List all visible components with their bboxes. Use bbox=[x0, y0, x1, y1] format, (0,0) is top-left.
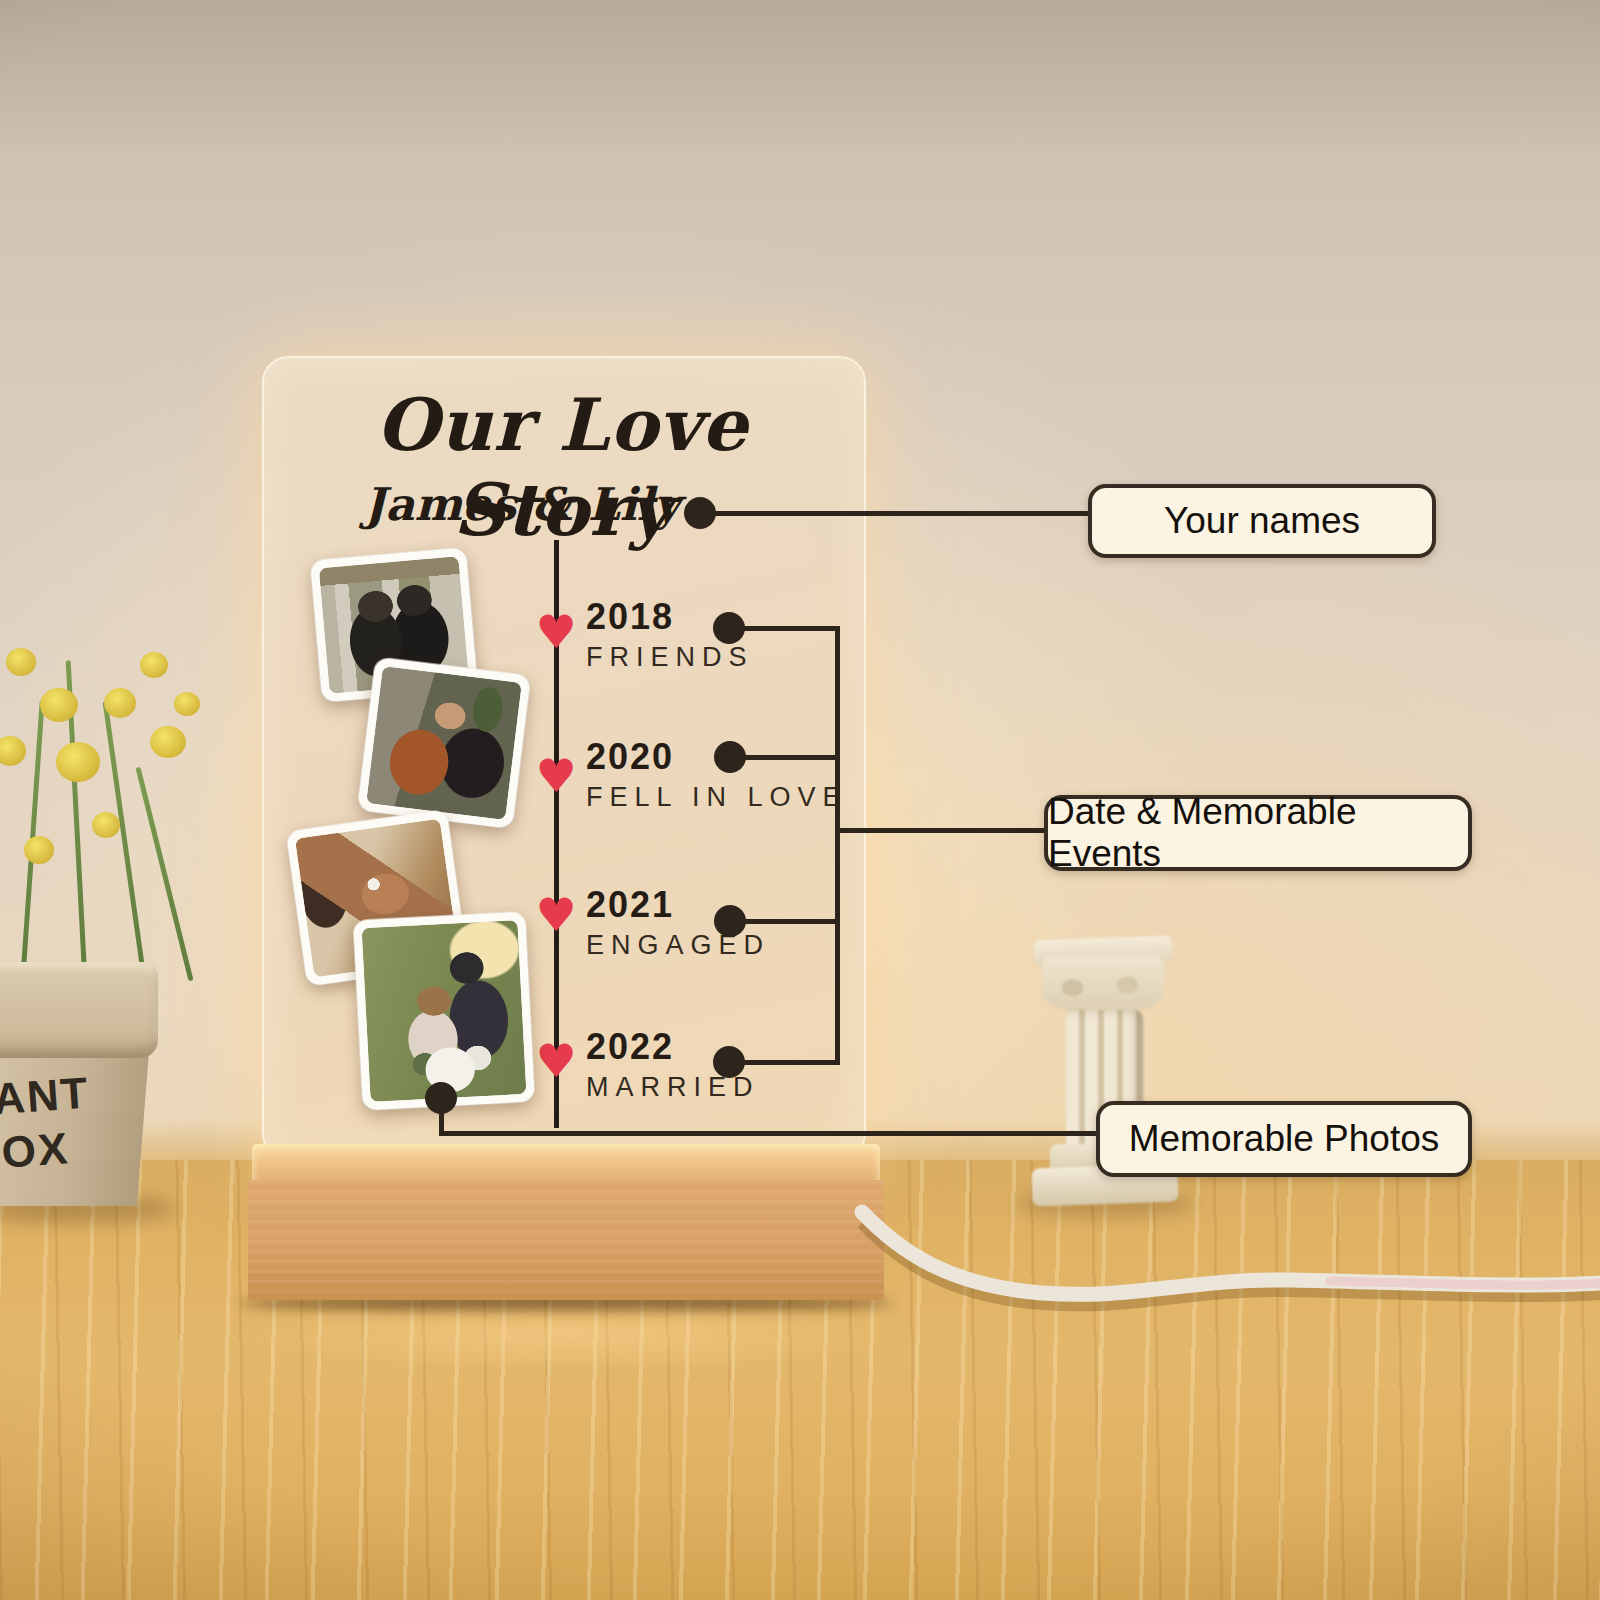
photos-callout-line bbox=[439, 1131, 1098, 1136]
events-callout-line bbox=[835, 828, 1046, 833]
names-connector-line bbox=[700, 511, 1090, 516]
events-callout-label: Date & Memorable Events bbox=[1048, 791, 1468, 875]
photos-callout: Memorable Photos bbox=[1096, 1101, 1472, 1177]
event-connector-line bbox=[730, 755, 839, 760]
event-connector-line bbox=[730, 919, 839, 924]
events-callout: Date & Memorable Events bbox=[1044, 795, 1472, 871]
your-names-callout-label: Your names bbox=[1164, 500, 1360, 542]
your-names-callout: Your names bbox=[1088, 484, 1436, 558]
event-connector-line bbox=[729, 626, 839, 631]
product-photo-scene: LANT BOX Our Love Story James & Lily ♥ ♥… bbox=[0, 0, 1600, 1600]
event-connector-line bbox=[729, 1060, 839, 1065]
photos-callout-label: Memorable Photos bbox=[1129, 1118, 1440, 1160]
event-connector-spine bbox=[835, 626, 840, 1065]
